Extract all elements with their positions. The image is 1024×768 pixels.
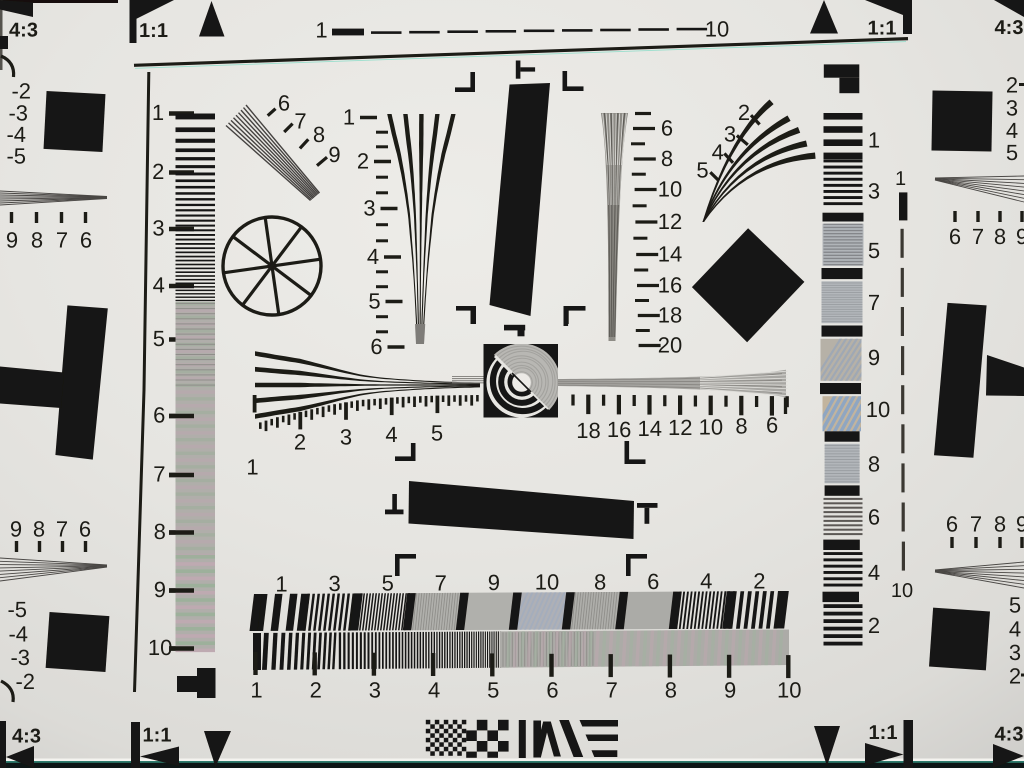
svg-text:10: 10 (658, 176, 682, 201)
svg-text:20: 20 (658, 332, 682, 357)
svg-text:4:3: 4:3 (12, 726, 41, 748)
svg-text:4: 4 (385, 422, 397, 447)
svg-text:1: 1 (246, 454, 258, 479)
svg-text:5: 5 (382, 571, 394, 596)
svg-text:6: 6 (546, 677, 558, 702)
svg-text:8: 8 (994, 511, 1006, 536)
svg-text:8: 8 (154, 519, 166, 544)
svg-text:18: 18 (576, 418, 600, 443)
svg-text:3: 3 (369, 677, 381, 702)
svg-text:8: 8 (594, 569, 606, 594)
svg-text:7: 7 (970, 511, 982, 536)
svg-text:9: 9 (154, 577, 166, 602)
svg-text:4: 4 (428, 677, 440, 702)
svg-text:6: 6 (766, 413, 778, 438)
svg-text:8: 8 (31, 227, 43, 252)
svg-text:12: 12 (658, 209, 682, 234)
svg-text:6: 6 (949, 224, 961, 249)
svg-text:4: 4 (1009, 616, 1021, 641)
svg-text:7: 7 (606, 677, 618, 702)
svg-text:6: 6 (278, 90, 290, 115)
svg-text:14: 14 (637, 416, 661, 441)
svg-text:3: 3 (724, 121, 736, 146)
svg-text:4: 4 (712, 140, 724, 165)
svg-text:3: 3 (1006, 95, 1018, 120)
svg-text:8: 8 (994, 224, 1006, 249)
svg-text:10: 10 (705, 17, 729, 42)
svg-text:1: 1 (275, 571, 287, 596)
svg-text:1:1: 1:1 (869, 722, 898, 744)
svg-text:3: 3 (152, 215, 164, 240)
svg-text:1: 1 (152, 100, 164, 125)
svg-text:8: 8 (313, 122, 325, 147)
svg-text:9: 9 (488, 570, 500, 595)
svg-text:1: 1 (343, 104, 355, 129)
svg-text:-5: -5 (6, 143, 26, 168)
svg-text:1: 1 (315, 18, 327, 43)
svg-text:8: 8 (868, 451, 880, 476)
svg-text:-4: -4 (8, 621, 28, 646)
svg-text:9: 9 (6, 227, 18, 252)
svg-text:3: 3 (328, 571, 340, 596)
svg-text:9: 9 (10, 516, 22, 541)
svg-text:2: 2 (357, 148, 369, 173)
svg-text:4:3: 4:3 (995, 724, 1024, 746)
svg-text:16: 16 (658, 272, 682, 297)
svg-text:7: 7 (294, 108, 306, 133)
svg-text:9: 9 (1016, 224, 1024, 249)
svg-text:10: 10 (699, 414, 723, 439)
svg-text:18: 18 (658, 302, 682, 327)
svg-text:10: 10 (148, 635, 172, 660)
svg-text:9: 9 (868, 345, 880, 370)
svg-text:5: 5 (368, 288, 380, 313)
svg-text:1:1: 1:1 (868, 18, 897, 40)
svg-text:7: 7 (972, 224, 984, 249)
svg-text:-5: -5 (7, 597, 27, 622)
svg-text:14: 14 (658, 241, 682, 266)
svg-text:10: 10 (891, 580, 913, 602)
svg-text:-2: -2 (15, 669, 35, 694)
svg-text:7: 7 (868, 290, 880, 315)
svg-text:2: 2 (1009, 663, 1021, 688)
svg-text:2: 2 (1006, 72, 1018, 97)
svg-text:8: 8 (735, 413, 747, 438)
svg-text:6: 6 (153, 402, 165, 427)
svg-text:5: 5 (487, 677, 499, 702)
svg-text:8: 8 (661, 146, 673, 171)
svg-text:6: 6 (946, 511, 958, 536)
svg-text:4: 4 (367, 244, 379, 269)
svg-text:4:3: 4:3 (995, 17, 1024, 39)
svg-text:1: 1 (250, 677, 262, 702)
svg-text:9: 9 (1016, 511, 1024, 536)
svg-text:9: 9 (724, 677, 736, 702)
svg-text:2: 2 (868, 613, 880, 638)
svg-text:6: 6 (370, 334, 382, 359)
svg-text:6: 6 (868, 504, 880, 529)
svg-text:2: 2 (738, 100, 750, 125)
svg-text:1: 1 (895, 168, 906, 190)
svg-text:6: 6 (661, 115, 673, 140)
svg-text:4: 4 (700, 569, 712, 594)
svg-text:4: 4 (153, 272, 165, 297)
svg-text:4:3: 4:3 (9, 20, 38, 42)
svg-text:9: 9 (328, 142, 340, 167)
svg-text:10: 10 (535, 570, 559, 595)
svg-text:5: 5 (1009, 592, 1021, 617)
svg-text:8: 8 (665, 677, 677, 702)
svg-text:7: 7 (56, 227, 68, 252)
svg-text:7: 7 (435, 570, 447, 595)
svg-text:6: 6 (79, 516, 91, 541)
svg-text:12: 12 (668, 415, 692, 440)
svg-text:5: 5 (696, 158, 708, 183)
svg-text:2: 2 (310, 677, 322, 702)
svg-text:3: 3 (868, 178, 880, 203)
svg-text:16: 16 (607, 417, 631, 442)
svg-text:2: 2 (753, 568, 765, 593)
svg-text:10: 10 (866, 397, 890, 422)
svg-text:1:1: 1:1 (143, 725, 172, 747)
svg-text:4: 4 (868, 560, 880, 585)
svg-text:7: 7 (153, 461, 165, 486)
svg-text:2: 2 (152, 159, 164, 184)
svg-text:6: 6 (647, 569, 659, 594)
svg-text:5: 5 (431, 420, 443, 445)
svg-text:2: 2 (294, 429, 306, 454)
svg-text:5: 5 (1006, 140, 1018, 165)
svg-text:8: 8 (33, 516, 45, 541)
svg-text:5: 5 (153, 326, 165, 351)
svg-text:-3: -3 (10, 645, 30, 670)
svg-text:7: 7 (56, 516, 68, 541)
svg-text:10: 10 (777, 677, 801, 702)
svg-text:1:1: 1:1 (139, 20, 168, 42)
svg-text:5: 5 (868, 238, 880, 263)
svg-text:3: 3 (1009, 640, 1021, 665)
svg-text:3: 3 (363, 195, 375, 220)
svg-text:6: 6 (80, 227, 92, 252)
svg-text:3: 3 (340, 424, 352, 449)
svg-text:1: 1 (868, 127, 880, 152)
